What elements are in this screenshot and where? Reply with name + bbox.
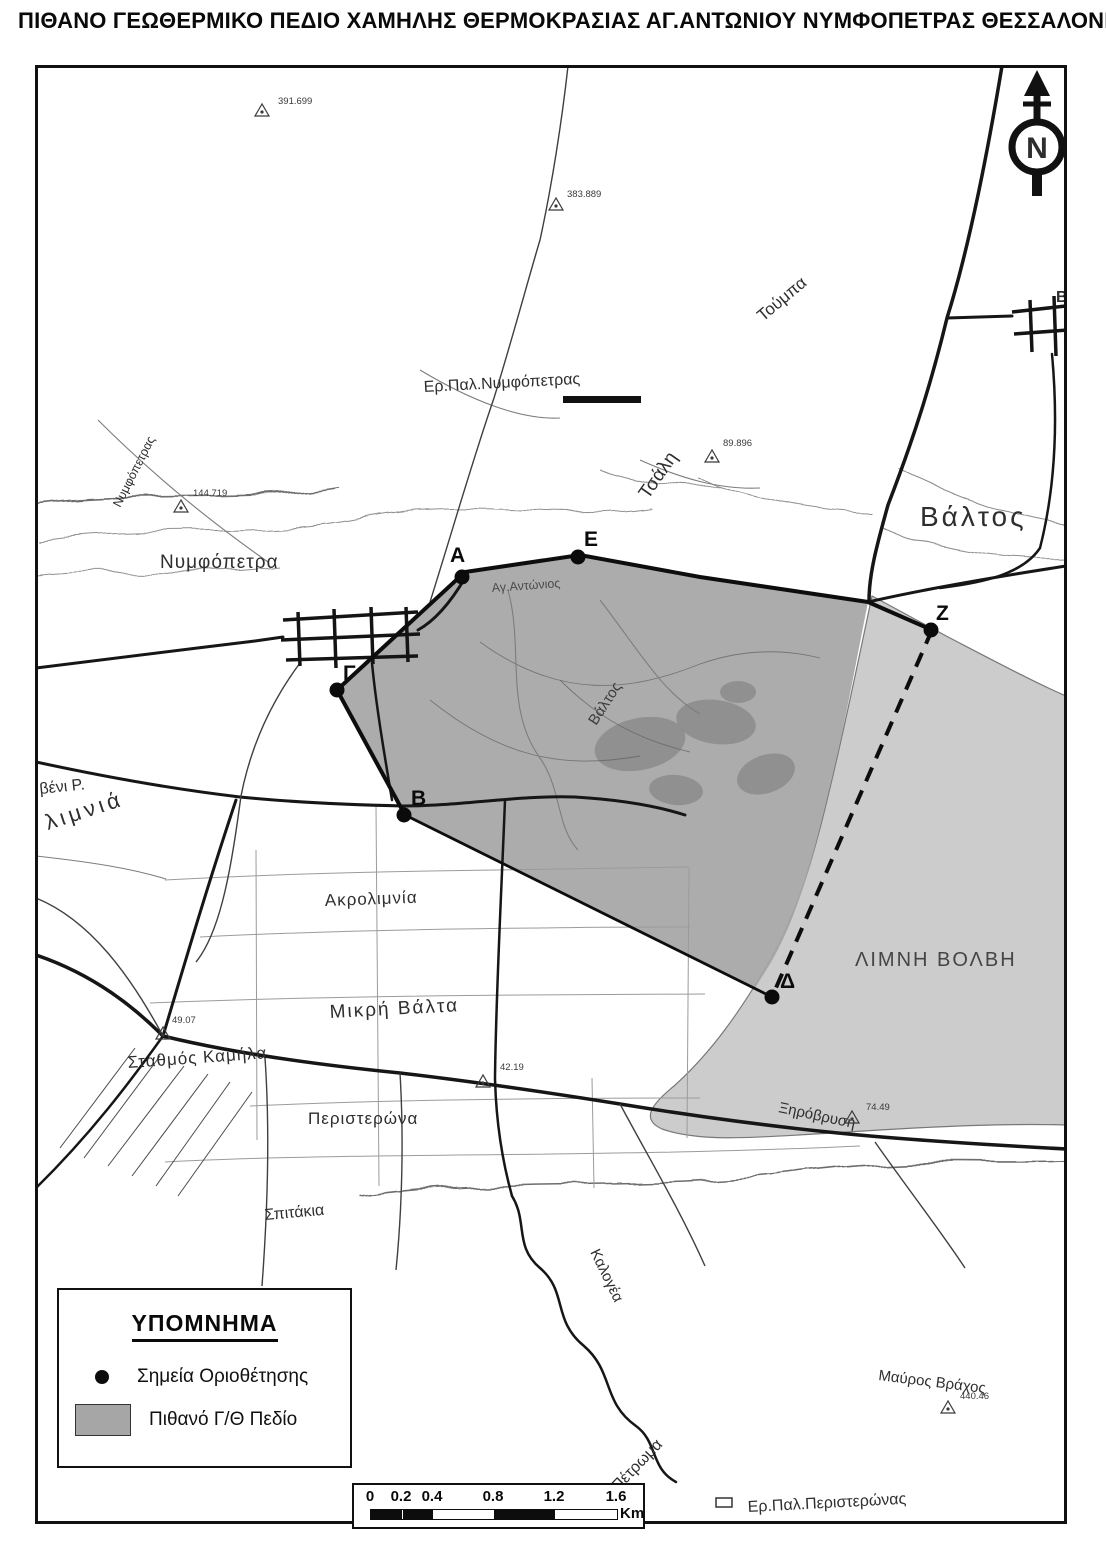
map-page: ΠΙΘΑΝΟ ΓΕΩΘΕΡΜΙΚΟ ΠΕΔΙΟ ΧΑΜΗΛΗΣ ΘΕΡΜΟΚΡΑ…: [0, 0, 1106, 1554]
trig-point-icon: [705, 450, 719, 462]
map-label: Ακρολιμνία: [324, 888, 417, 910]
trig-point-icon: [174, 500, 188, 512]
field-swatch-icon: [75, 1404, 131, 1436]
elevation-label: 74.49: [866, 1102, 890, 1113]
vertex-label: Ζ: [936, 602, 949, 625]
scale-bar-segments: [370, 1509, 618, 1520]
elevation-label: 144.719: [193, 488, 227, 499]
map-label: Σπιτάκια: [264, 1202, 325, 1224]
trig-point-icon: [549, 198, 563, 210]
map-label: Μικρή Βάλτα: [329, 995, 460, 1023]
map-label: ΛΙΜΝΗ ΒΟΛΒΗ: [855, 949, 1017, 971]
trig-point-dot: [850, 1117, 853, 1120]
vertex-point-Α: [455, 570, 470, 585]
scale-tick: 0: [366, 1488, 374, 1505]
trig-point-dot: [554, 204, 557, 207]
map-label: Τσάλη: [635, 448, 682, 503]
ruins-bar-nymfopetra: [563, 396, 641, 403]
map-label: Βάλτος: [920, 501, 1027, 532]
trig-point-icon: [941, 1401, 955, 1413]
elevation-label: 383.889: [567, 189, 601, 200]
legend-item-label: Σημεία Οριοθέτησης: [137, 1366, 308, 1388]
legend-item-label: Πιθανό Γ/Θ Πεδίο: [149, 1409, 297, 1431]
map-label: Νυμφόπετρα: [160, 552, 279, 573]
trig-point-dot: [260, 110, 263, 113]
map-label: βένι Ρ.: [39, 776, 86, 798]
elevation-label: 391.699: [278, 96, 312, 107]
ruins-symbol-peristeronas: [716, 1498, 732, 1507]
vertex-label: Δ: [780, 970, 795, 993]
vertex-point-Δ: [765, 990, 780, 1005]
elevation-label: 49.07: [172, 1015, 196, 1026]
scale-tick: 1.2: [544, 1488, 565, 1505]
vertex-point-Β: [397, 808, 412, 823]
legend-item-points: Σημεία Οριοθέτησης: [59, 1366, 350, 1388]
map-label: Ερ.Παλ.Περιστερώνας: [747, 1491, 907, 1516]
map-label: Ερ.Παλ.Νυμφόπετρας: [423, 371, 581, 396]
legend-box: ΥΠΟΜΝΗΜΑ Σημεία Οριοθέτησης Πιθανό Γ/Θ Π…: [57, 1288, 352, 1468]
elevation-label: 42.19: [500, 1062, 524, 1073]
trig-point-dot: [179, 506, 182, 509]
vertex-label: Β: [411, 787, 426, 810]
trig-point-icon: [255, 104, 269, 116]
map-label: Σταθμός Καμήλα: [127, 1043, 268, 1072]
trig-point-dot: [161, 1033, 164, 1036]
vertex-label: Α: [450, 544, 465, 567]
trig-point-dot: [946, 1407, 949, 1410]
scale-bar: 0 0.2 0.4 0.8 1.2 1.6 Km: [352, 1483, 645, 1529]
scale-tick: 0.8: [483, 1488, 504, 1505]
trig-point-dot: [481, 1081, 484, 1084]
vertex-label: Ε: [584, 528, 598, 551]
map-label: Καλογέα: [586, 1246, 626, 1305]
vertex-label: Γ: [343, 662, 356, 685]
map-label: N: [1026, 132, 1048, 165]
scale-tick: 1.6: [606, 1488, 627, 1505]
map-label: Τούμπα: [753, 273, 810, 325]
scale-unit: Km: [620, 1505, 644, 1522]
elevation-label: 440.46: [960, 1391, 989, 1402]
elevation-label: 89.896: [723, 438, 752, 449]
trig-point-dot: [710, 456, 713, 459]
hatch-field: [60, 1048, 252, 1196]
legend-title: ΥΠΟΜΝΗΜΑ: [132, 1310, 278, 1342]
legend-item-field: Πιθανό Γ/Θ Πεδίο: [59, 1404, 350, 1436]
scale-tick: 0.2: [391, 1488, 412, 1505]
vertex-point-Ε: [571, 550, 586, 565]
point-symbol-icon: [95, 1370, 109, 1384]
map-label: Περιστερώνα: [308, 1109, 418, 1128]
scale-tick: 0.4: [422, 1488, 443, 1505]
